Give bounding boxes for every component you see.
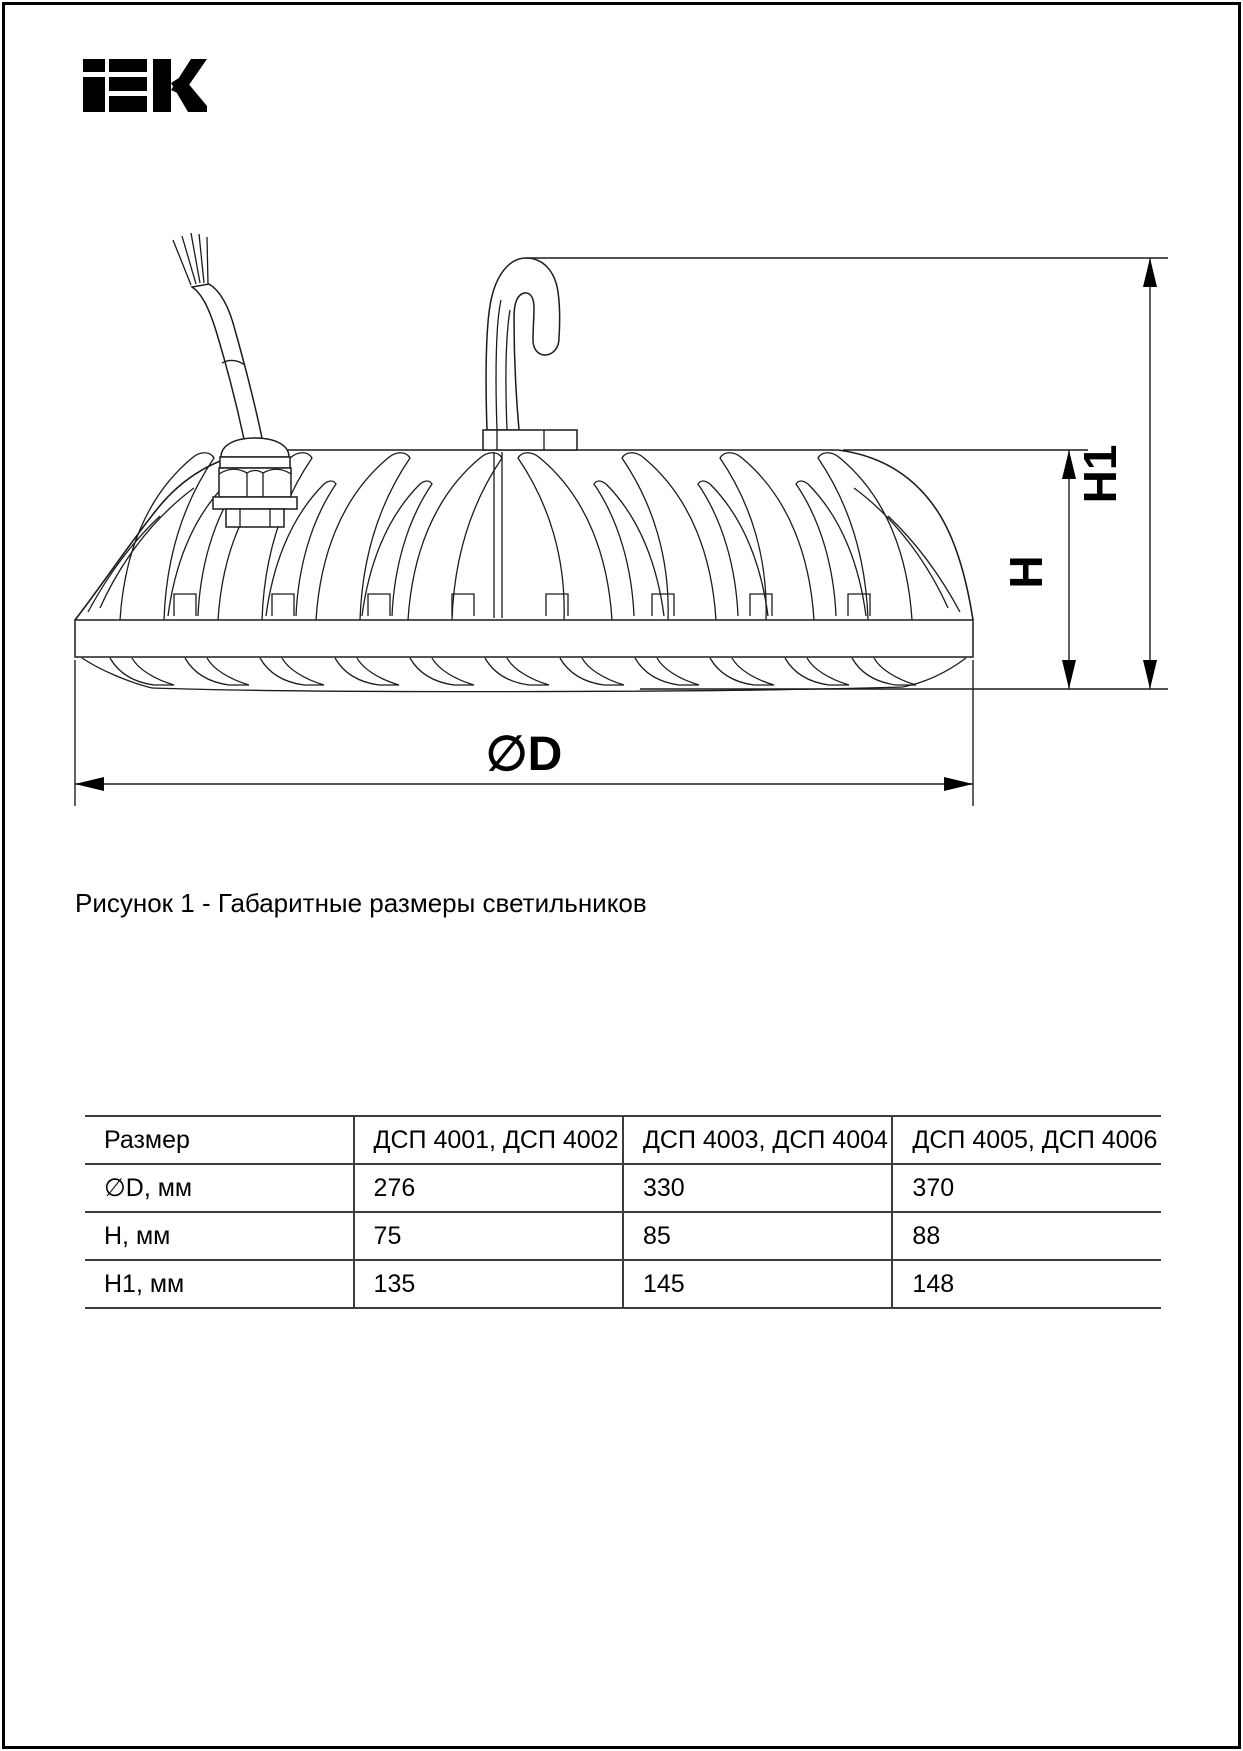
base-rim (75, 620, 973, 657)
row-label-cell: ∅D, мм (85, 1164, 354, 1212)
table-cell: 85 (623, 1212, 892, 1260)
dim-label-diameter: ∅D (486, 728, 562, 781)
table-row: H1, мм 135 145 148 (85, 1260, 1161, 1308)
table-header-cell: ДСП 4001, ДСП 4002 (354, 1116, 623, 1164)
gland-hex-nut (219, 468, 291, 497)
table-header-cell: ДСП 4005, ДСП 4006 (892, 1116, 1161, 1164)
table-cell: 75 (354, 1212, 623, 1260)
logo-i-stem (83, 77, 105, 112)
table-cell: 135 (354, 1260, 623, 1308)
cable-and-gland (173, 233, 297, 527)
logo-e-bot (109, 96, 147, 112)
bottom-ring (82, 658, 966, 692)
table-cell: 145 (623, 1260, 892, 1308)
dim-label-total-height: H1 (1074, 445, 1126, 504)
dim-label-height: H (1000, 555, 1052, 588)
iek-logo (83, 59, 207, 112)
suspension-hook (483, 258, 577, 450)
row-label-cell: H, мм (85, 1212, 354, 1260)
table-row: ∅D, мм 276 330 370 (85, 1164, 1161, 1212)
table-cell: 370 (892, 1164, 1161, 1212)
dimensions-table: Размер ДСП 4001, ДСП 4002 ДСП 4003, ДСП … (85, 1115, 1161, 1309)
figure-caption: Рисунок 1 - Габаритные размеры светильни… (75, 888, 647, 918)
table-header-cell: ДСП 4003, ДСП 4004 (623, 1116, 892, 1164)
gland-cap (221, 438, 289, 457)
gland-neck (226, 509, 284, 527)
table-cell: 330 (623, 1164, 892, 1212)
table-cell: 148 (892, 1260, 1161, 1308)
logo-e-top (109, 59, 147, 72)
row-label-cell: H1, мм (85, 1260, 354, 1308)
housing-outline (75, 450, 973, 620)
luminaire-dimension-drawing: ∅D H H1 (60, 225, 1180, 815)
table-cell: 276 (354, 1164, 623, 1212)
logo-i-dot (83, 59, 105, 72)
table-header-cell: Размер (85, 1116, 354, 1164)
logo-e-mid (109, 77, 147, 91)
table-header-row: Размер ДСП 4001, ДСП 4002 ДСП 4003, ДСП … (85, 1116, 1161, 1164)
logo-k-stem (153, 59, 171, 112)
datasheet-page: ∅D H H1 Рисунок 1 - Габаритные размеры с… (0, 0, 1243, 1751)
cable-wires (173, 233, 208, 285)
gland-flange (213, 497, 297, 509)
table-cell: 88 (892, 1212, 1161, 1260)
table-row: H, мм 75 85 88 (85, 1212, 1161, 1260)
